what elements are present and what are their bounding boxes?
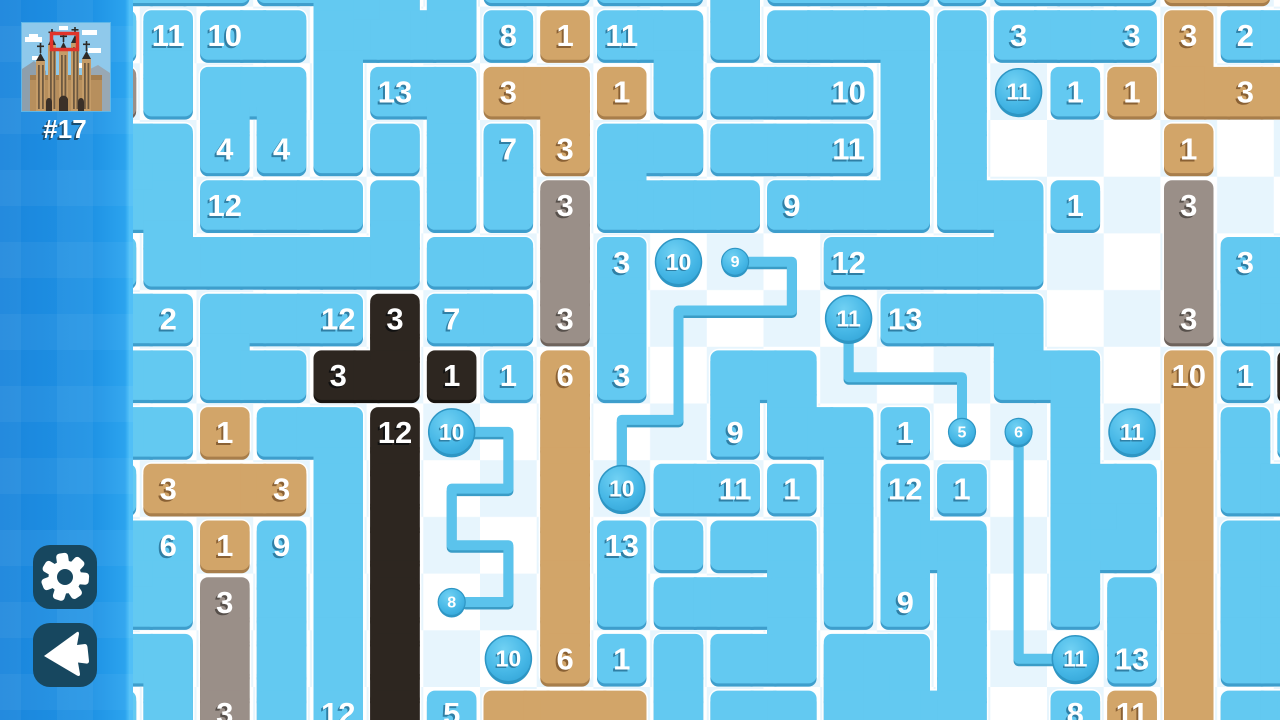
svg-text:10: 10 — [1172, 358, 1206, 393]
svg-text:3: 3 — [1180, 188, 1197, 223]
svg-text:12: 12 — [378, 415, 412, 450]
svg-text:3: 3 — [1180, 302, 1197, 337]
svg-text:9: 9 — [783, 188, 800, 223]
svg-text:1: 1 — [953, 472, 970, 507]
svg-text:3: 3 — [273, 472, 290, 507]
svg-text:1: 1 — [500, 358, 517, 393]
svg-text:3: 3 — [613, 245, 630, 280]
svg-text:12: 12 — [321, 302, 355, 337]
svg-text:3: 3 — [386, 302, 403, 337]
svg-text:3: 3 — [556, 188, 573, 223]
svg-text:10: 10 — [666, 249, 692, 275]
svg-text:11: 11 — [832, 131, 865, 166]
svg-text:4: 4 — [273, 131, 291, 166]
svg-text:7: 7 — [443, 302, 460, 337]
svg-text:3: 3 — [330, 358, 347, 393]
svg-text:1: 1 — [1067, 188, 1084, 223]
svg-text:11: 11 — [1063, 646, 1088, 672]
svg-text:11: 11 — [152, 18, 185, 53]
svg-text:3: 3 — [500, 75, 517, 110]
svg-text:13: 13 — [605, 528, 639, 563]
svg-text:10: 10 — [439, 419, 465, 445]
svg-text:1: 1 — [783, 472, 800, 507]
svg-text:3: 3 — [160, 472, 177, 507]
svg-text:1: 1 — [216, 415, 233, 450]
svg-text:11: 11 — [719, 472, 752, 507]
svg-text:11: 11 — [1116, 696, 1149, 720]
svg-text:5: 5 — [443, 696, 460, 720]
svg-text:1: 1 — [556, 18, 573, 53]
svg-text:9: 9 — [273, 528, 290, 563]
svg-text:8: 8 — [500, 18, 517, 53]
svg-text:8: 8 — [1067, 696, 1084, 720]
svg-text:1: 1 — [443, 358, 460, 393]
svg-text:12: 12 — [888, 472, 922, 507]
svg-text:10: 10 — [609, 476, 635, 502]
svg-text:3: 3 — [216, 696, 233, 720]
svg-text:1: 1 — [1067, 75, 1084, 110]
svg-text:3: 3 — [1180, 18, 1197, 53]
svg-text:6: 6 — [556, 642, 573, 677]
svg-text:1: 1 — [1123, 75, 1140, 110]
svg-text:5: 5 — [958, 424, 967, 441]
svg-text:1: 1 — [897, 415, 914, 450]
svg-text:3: 3 — [1237, 75, 1254, 110]
svg-text:10: 10 — [496, 646, 522, 672]
svg-text:12: 12 — [208, 188, 242, 223]
svg-text:3: 3 — [613, 358, 630, 393]
svg-text:6: 6 — [556, 358, 573, 393]
svg-text:10: 10 — [831, 75, 865, 110]
svg-text:2: 2 — [1237, 18, 1254, 53]
svg-text:3: 3 — [556, 302, 573, 337]
svg-text:9: 9 — [897, 585, 914, 620]
svg-text:6: 6 — [1014, 424, 1023, 441]
svg-text:1: 1 — [1237, 358, 1254, 393]
svg-text:11: 11 — [836, 306, 861, 332]
svg-text:13: 13 — [888, 302, 922, 337]
svg-text:3: 3 — [556, 131, 573, 166]
svg-text:2: 2 — [160, 302, 177, 337]
svg-text:6: 6 — [160, 528, 177, 563]
svg-text:3: 3 — [1010, 18, 1027, 53]
svg-text:11: 11 — [605, 18, 638, 53]
svg-text:13: 13 — [378, 75, 412, 110]
svg-text:3: 3 — [1123, 18, 1140, 53]
svg-text:13: 13 — [1115, 642, 1149, 677]
svg-text:10: 10 — [208, 18, 242, 53]
svg-text:8: 8 — [447, 595, 456, 612]
svg-text:1: 1 — [613, 642, 630, 677]
svg-text:4: 4 — [216, 131, 234, 166]
svg-text:1: 1 — [1180, 131, 1197, 166]
svg-text:3: 3 — [216, 585, 233, 620]
svg-text:3: 3 — [1237, 245, 1254, 280]
svg-text:12: 12 — [321, 696, 355, 720]
svg-text:9: 9 — [726, 415, 743, 450]
svg-text:1: 1 — [216, 528, 233, 563]
svg-text:11: 11 — [1006, 79, 1031, 105]
svg-text:12: 12 — [831, 245, 865, 280]
svg-text:7: 7 — [500, 131, 517, 166]
svg-text:9: 9 — [731, 254, 740, 271]
svg-text:11: 11 — [1120, 419, 1145, 445]
svg-text:1: 1 — [613, 75, 630, 110]
